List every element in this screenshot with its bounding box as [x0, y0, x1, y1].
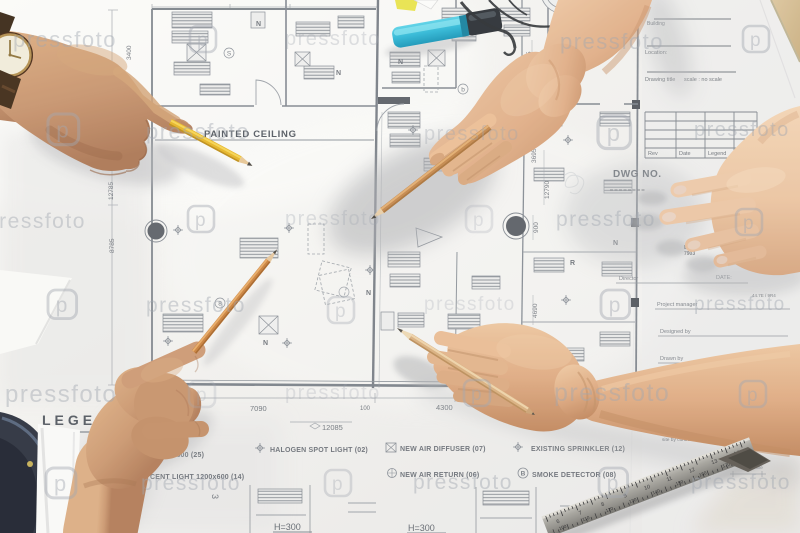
svg-text:pressfoto: pressfoto — [285, 382, 381, 404]
svg-text:pressfoto: pressfoto — [554, 379, 670, 407]
svg-text:pressfoto: pressfoto — [424, 123, 520, 145]
svg-text:pressfoto: pressfoto — [413, 471, 513, 494]
svg-text:pressfoto: pressfoto — [5, 381, 117, 408]
svg-text:pressfoto: pressfoto — [146, 294, 246, 317]
svg-text:pressfoto: pressfoto — [560, 29, 664, 54]
svg-text:pressfoto: pressfoto — [694, 119, 790, 141]
svg-text:pressfoto: pressfoto — [141, 472, 241, 495]
svg-text:pressfoto: pressfoto — [285, 28, 381, 50]
svg-text:pressfoto: pressfoto — [424, 294, 516, 315]
svg-text:pressfoto: pressfoto — [13, 27, 117, 52]
svg-text:pressfoto: pressfoto — [694, 294, 786, 315]
svg-text:pressfoto: pressfoto — [556, 208, 656, 231]
svg-text:pressfoto: pressfoto — [691, 471, 791, 494]
svg-text:pressfoto: pressfoto — [285, 208, 381, 230]
svg-text:pressfoto: pressfoto — [146, 119, 250, 144]
svg-text:pressfoto: pressfoto — [0, 210, 86, 233]
